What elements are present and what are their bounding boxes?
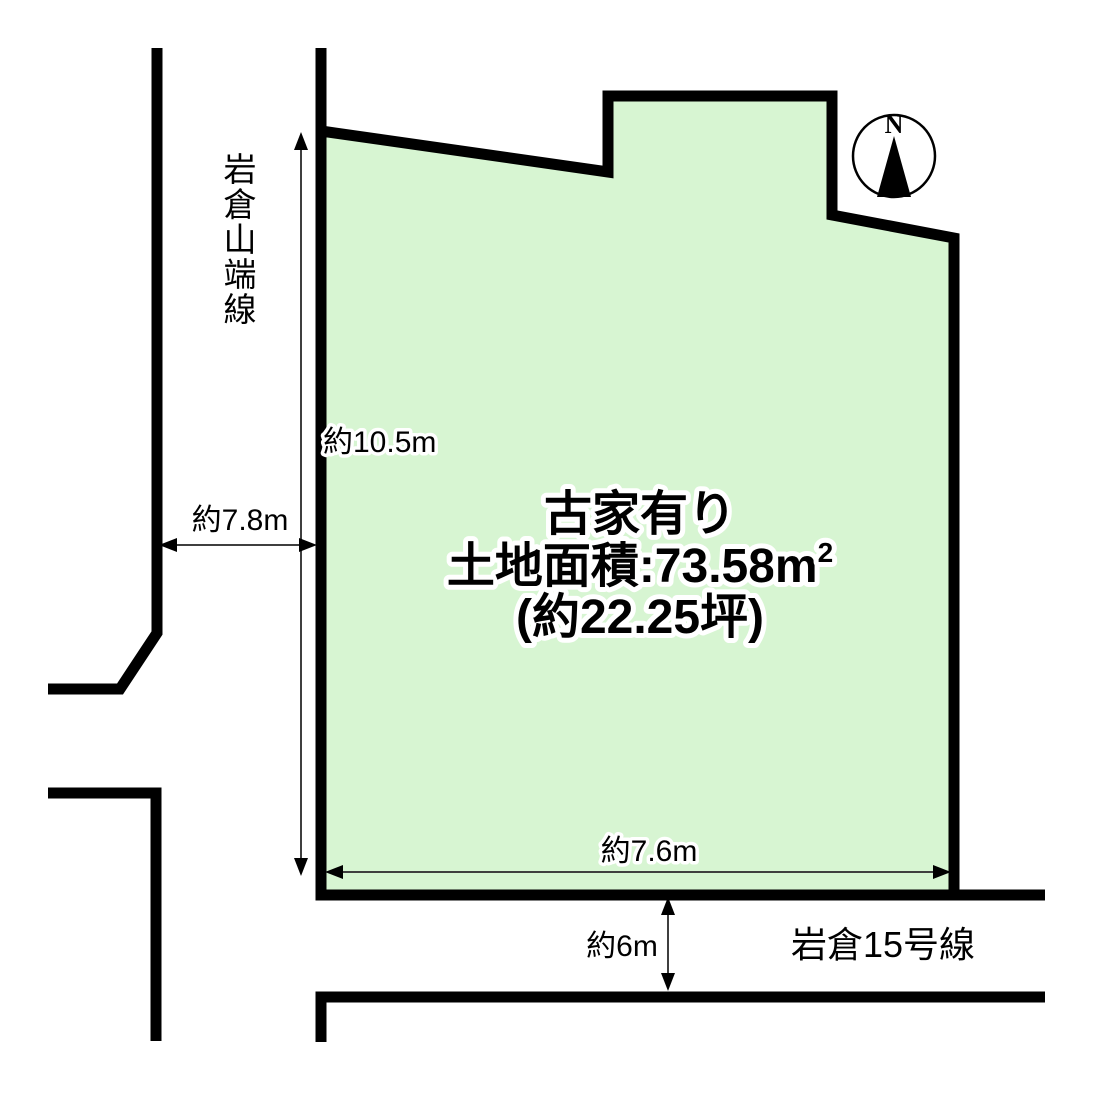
dimension-arrow-west-frontage — [294, 132, 308, 876]
west-road-name-label: 岩倉山端線 — [221, 152, 254, 327]
plot-area-tsubo: (約22.25坪) — [516, 591, 764, 644]
dimension-arrow-south-road-width — [661, 897, 675, 991]
diagram-canvas: N 約10.5m 約7.8m 約7.6m 約6m — [0, 0, 1093, 1093]
dimension-label-west-frontage: 約10.5m — [323, 426, 436, 459]
south-road-lower-boundary — [321, 997, 1045, 1042]
compass: N — [853, 110, 935, 197]
plot-area-label: 土地面積:73.58m2 — [447, 537, 833, 593]
dimension-label-west-road-width: 約7.8m — [192, 504, 289, 537]
plot-note-old-house: 古家有り — [544, 488, 736, 541]
plot-area-unit: m — [775, 540, 818, 593]
dimension-arrow-west-road-width — [159, 538, 317, 552]
plot-area-value: 土地面積:73.58 — [447, 540, 775, 593]
plot-area-unit-superscript: 2 — [818, 537, 834, 568]
dimension-label-south-frontage: 約7.6m — [601, 835, 698, 868]
compass-north-label: N — [885, 110, 904, 139]
west-road-outer-boundary-upper — [48, 48, 157, 689]
west-road-outer-boundary-lower — [48, 793, 156, 1041]
south-road-name-label: 岩倉15号線 — [791, 924, 975, 965]
site-plan-diagram: N 約10.5m 約7.8m 約7.6m 約6m — [0, 0, 1093, 1093]
dimension-label-south-road-width: 約6m — [586, 930, 658, 963]
